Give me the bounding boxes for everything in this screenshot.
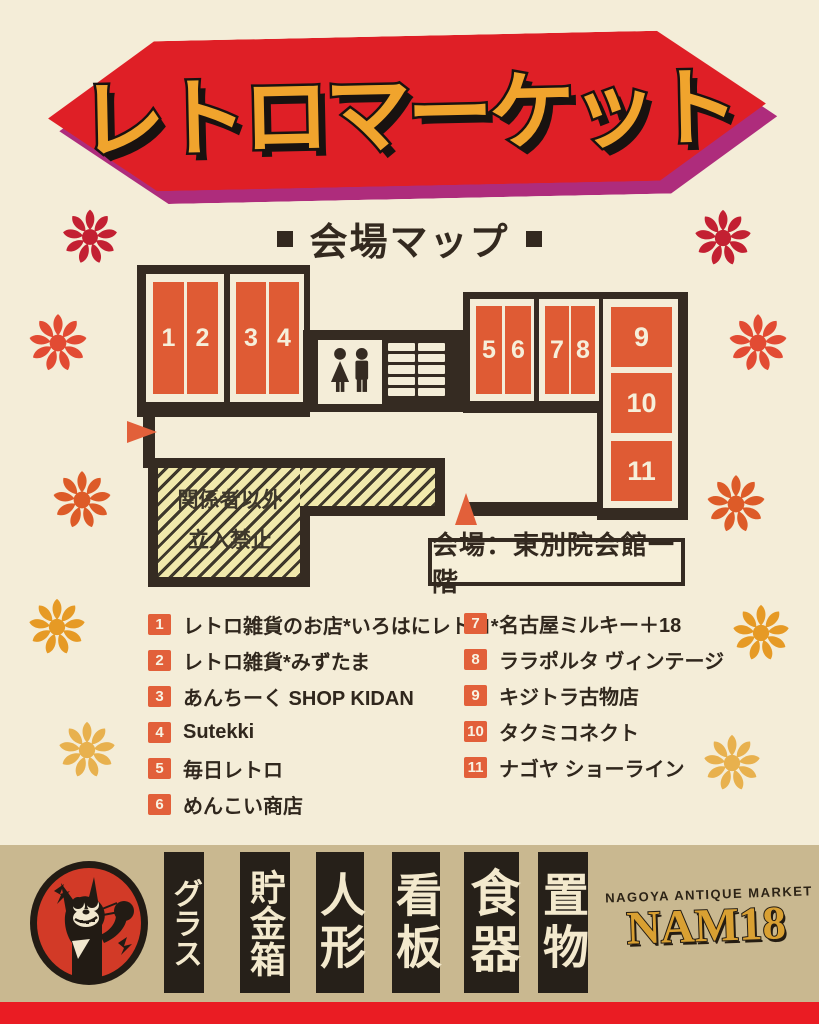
category-sign-piggy-bank: 貯金箱 — [240, 852, 290, 993]
locker-cell — [418, 388, 445, 396]
venue-label-box: 会場：東別院会館一階 — [428, 538, 685, 586]
poster-title: レトロマーケット — [46, 19, 767, 194]
red-bottom-strip — [0, 1002, 819, 1024]
restroom-area — [318, 340, 382, 404]
flower-icon — [695, 726, 769, 800]
square-bullet-icon — [526, 231, 542, 247]
legend-item: 1 レトロ雑貨のお店*いろはにレトロ* — [148, 614, 499, 635]
locker-cell — [418, 377, 445, 385]
legend-item: 11 ナゴヤ ショーライン — [464, 757, 724, 778]
shop-name: ララポルタ ヴィンテージ — [499, 645, 724, 674]
flower-icon — [20, 590, 94, 664]
legend-right-column: 7 名古屋ミルキー＋18 8 ララポルタ ヴィンテージ 9 キジトラ古物店 10… — [464, 613, 724, 778]
category-sign-ornament: 置物 — [538, 852, 588, 993]
legend-item: 5 毎日レトロ — [148, 758, 499, 779]
flower-icon — [44, 462, 120, 538]
locker-cell — [418, 354, 445, 362]
booth-9: 9 — [611, 307, 672, 367]
booth-6: 6 — [505, 306, 531, 394]
flower-icon — [686, 201, 760, 275]
brand-logo-nam18: NAM18 — [605, 899, 807, 955]
shop-name: タクミコネクト — [499, 717, 639, 746]
shop-name: レトロ雑貨のお店*いろはにレトロ* — [183, 610, 499, 639]
locker-cell — [388, 365, 415, 373]
legend-number-badge: 2 — [148, 650, 171, 671]
shop-name: Sutekki — [183, 721, 254, 744]
category-sign-doll: 人形 — [316, 852, 364, 993]
shop-name: レトロ雑貨*みずたま — [183, 646, 370, 675]
locker-cell — [418, 343, 445, 351]
shop-name: ナゴヤ ショーライン — [499, 753, 685, 782]
locker-cell — [388, 343, 415, 351]
category-sign-glass: グラス — [164, 852, 204, 993]
flower-icon — [720, 305, 796, 381]
booth-5: 5 — [476, 306, 502, 394]
flower-icon — [50, 713, 124, 787]
legend-number-badge: 4 — [148, 722, 171, 743]
locker-cell — [388, 377, 415, 385]
map-heading-label: 会場マップ — [309, 211, 509, 266]
category-sign-tableware: 食器 — [464, 852, 519, 993]
category-sign-signboard: 看板 — [392, 852, 440, 993]
footer-band: グラス 貯金箱 人形 看板 食器 置物 NAGOYA ANTIQUE MARKE… — [0, 845, 819, 1024]
shop-name: キジトラ古物店 — [499, 681, 639, 710]
venue-label: 会場：東別院会館一階 — [432, 525, 681, 599]
restricted-line-2: 立入禁止 — [155, 521, 305, 561]
shop-name: 毎日レトロ — [183, 754, 283, 783]
booth-3: 3 — [236, 282, 266, 394]
black-cat-logo — [28, 859, 150, 987]
square-bullet-icon — [277, 231, 293, 247]
legend-number-badge: 8 — [464, 649, 487, 670]
legend-item: 10 タクミコネクト — [464, 721, 724, 742]
flower-icon — [698, 466, 774, 542]
legend-number-badge: 6 — [148, 794, 171, 815]
legend-item: 3 あんちーく SHOP KIDAN — [148, 686, 499, 707]
legend-item: 2 レトロ雑貨*みずたま — [148, 650, 499, 671]
legend-number-badge: 11 — [464, 757, 487, 778]
locker-cell — [388, 354, 415, 362]
shop-name: めんこい商店 — [183, 790, 303, 819]
legend-item: 9 キジトラ古物店 — [464, 685, 724, 706]
flower-icon — [54, 201, 126, 273]
legend-item: 7 名古屋ミルキー＋18 — [464, 613, 724, 634]
brand-block: NAGOYA ANTIQUE MARKET NAM18 — [605, 884, 807, 955]
legend-number-badge: 1 — [148, 614, 171, 635]
booth-7: 7 — [545, 306, 569, 394]
legend-item: 8 ララポルタ ヴィンテージ — [464, 649, 724, 670]
header-banner: レトロマーケット — [47, 28, 768, 193]
legend-number-badge: 7 — [464, 613, 487, 634]
flower-icon — [724, 596, 798, 670]
legend-number-badge: 10 — [464, 721, 487, 742]
booth-11: 11 — [611, 441, 672, 501]
locker-cell — [388, 388, 415, 396]
legend-item: 6 めんこい商店 — [148, 794, 499, 815]
map-wall-entrance — [467, 502, 599, 516]
entrance-arrow-icon — [127, 421, 157, 443]
locker-cell — [418, 365, 445, 373]
legend-number-badge: 5 — [148, 758, 171, 779]
booth-1: 1 — [153, 282, 184, 394]
booth-4: 4 — [269, 282, 299, 394]
retro-market-poster: レトロマーケット 会場マップ 1 2 3 4 — [0, 0, 819, 1024]
legend-number-badge: 3 — [148, 686, 171, 707]
booth-8: 8 — [571, 306, 595, 394]
locker-shelf-grid — [388, 343, 445, 396]
shop-name: 名古屋ミルキー＋18 — [499, 609, 681, 638]
legend-number-badge: 9 — [464, 685, 487, 706]
restricted-line-1: 関係者以外 — [155, 481, 305, 521]
legend-left-column: 1 レトロ雑貨のお店*いろはにレトロ* 2 レトロ雑貨*みずたま 3 あんちーく… — [148, 614, 499, 815]
restroom-icon — [321, 343, 379, 401]
booth-2: 2 — [187, 282, 218, 394]
flower-icon — [20, 305, 96, 381]
legend-item: 4 Sutekki — [148, 722, 499, 743]
restricted-area-label: 関係者以外 立入禁止 — [155, 481, 305, 561]
entrance-triangle-icon — [455, 493, 477, 525]
shop-name: あんちーく SHOP KIDAN — [183, 682, 414, 711]
booth-10: 10 — [611, 373, 672, 433]
